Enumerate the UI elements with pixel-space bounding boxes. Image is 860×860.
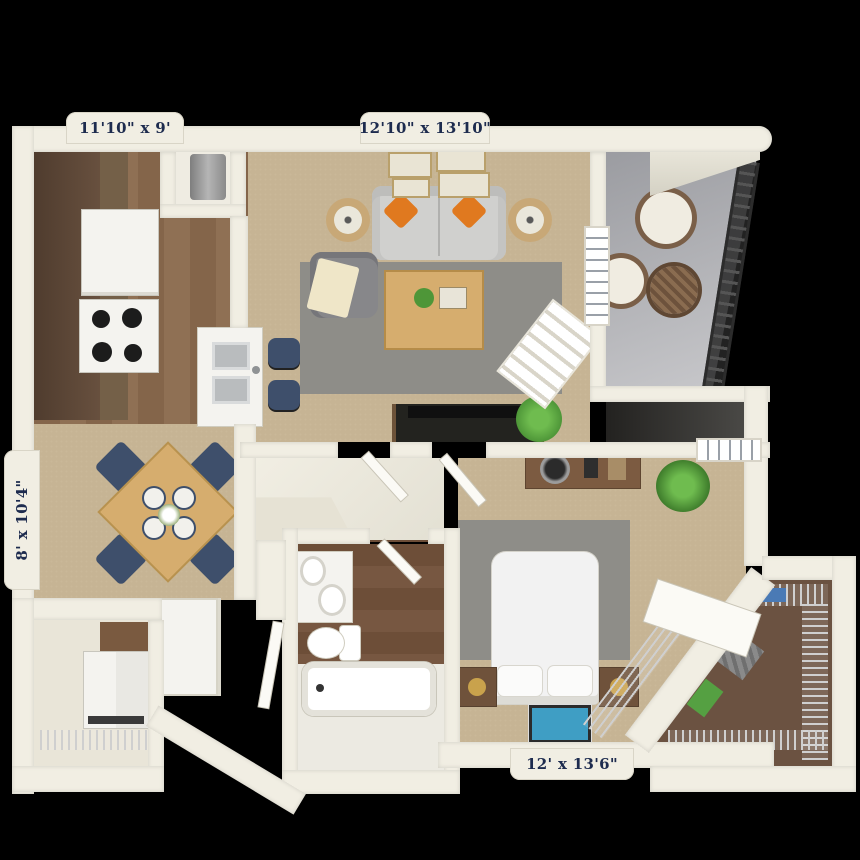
nightstand-lamp: [468, 678, 486, 696]
bathtub-drain: [316, 684, 324, 692]
wall-storage-top: [590, 386, 770, 402]
stove-burner: [92, 342, 112, 362]
washer-dryer-controls: [88, 716, 144, 724]
coffee-table-tray: [440, 288, 466, 308]
wall-bedroom-top: [390, 442, 432, 458]
wall-right-upper: [744, 386, 768, 566]
living-room-dimension-tab: 12'10" x 13'10": [360, 112, 490, 144]
sofa-cushion-divider: [438, 198, 440, 256]
bedroom-window: [698, 440, 760, 460]
entry-cabinet: [160, 598, 221, 696]
stove-burner: [92, 310, 110, 328]
laundry-wire-shelf: [40, 730, 148, 750]
wall-closet-right: [832, 556, 856, 792]
floor-plan: 11'10" x 9' 12'10" x 13'10" 8' x 10'4" 1…: [0, 0, 860, 860]
wall-bathroom-bottom: [282, 770, 460, 794]
wall-laundry-right: [148, 620, 164, 770]
patio-table: [650, 266, 698, 314]
wall-art-frame: [440, 174, 488, 196]
coffee-table: [386, 272, 482, 348]
sink-basin: [212, 342, 250, 370]
floor-art: [532, 708, 588, 740]
coffee-table-plant: [414, 288, 434, 308]
kitchen-dimension-label: 11'10" x 9': [79, 119, 171, 137]
place-setting: [144, 488, 164, 508]
floor-plant: [516, 396, 562, 442]
wall-art-frame: [394, 180, 428, 196]
flower-centerpiece: [158, 504, 180, 526]
vanity-sink: [318, 584, 346, 616]
wall-kitchen-living: [230, 216, 248, 328]
dresser-decor: [584, 458, 598, 478]
sink-basin: [212, 376, 250, 404]
stove-burner: [122, 308, 142, 328]
toilet-bowl: [308, 628, 344, 658]
bar-stool: [268, 380, 300, 410]
dining-dimension-tab: 8' x 10'4": [4, 450, 40, 590]
patio-chair: [640, 192, 692, 244]
wall-corridor: [256, 540, 286, 620]
stove-burner: [124, 344, 142, 362]
table-lamp: [516, 206, 544, 234]
stove: [80, 300, 158, 372]
wall-art-frame: [438, 152, 484, 170]
kitchen-dimension-tab: 11'10" x 9': [66, 112, 184, 144]
sink-faucet: [252, 366, 260, 374]
bedroom-dimension-tab: 12' x 13'6": [510, 748, 634, 780]
storage-floor: [606, 400, 746, 442]
place-setting: [174, 488, 194, 508]
wall-left-lower: [12, 598, 34, 794]
table-lamp: [334, 206, 362, 234]
dresser-mirror: [540, 454, 570, 484]
bed-pillow: [498, 666, 542, 696]
dresser-decor: [608, 456, 626, 480]
laundry-wood-panel: [100, 622, 148, 656]
water-heater: [190, 154, 226, 200]
wall-laundry-bottom: [12, 766, 164, 792]
wall-laundry-top: [12, 598, 162, 620]
bar-stool: [268, 338, 300, 368]
dining-dimension-label: 8' x 10'4": [13, 479, 31, 560]
wall-art-frame: [390, 154, 430, 176]
wall-bedroom-top: [240, 442, 338, 458]
vanity-sink: [300, 556, 326, 586]
bed-pillow: [548, 666, 592, 696]
bedroom-plant: [656, 460, 710, 512]
living-room-window: [586, 228, 608, 324]
refrigerator: [82, 210, 158, 295]
living-room-dimension-label: 12'10" x 13'10": [359, 119, 491, 137]
tv-screen: [408, 406, 528, 418]
bedroom-dimension-label: 12' x 13'6": [526, 755, 618, 773]
wall-closet-bottom: [650, 766, 856, 792]
